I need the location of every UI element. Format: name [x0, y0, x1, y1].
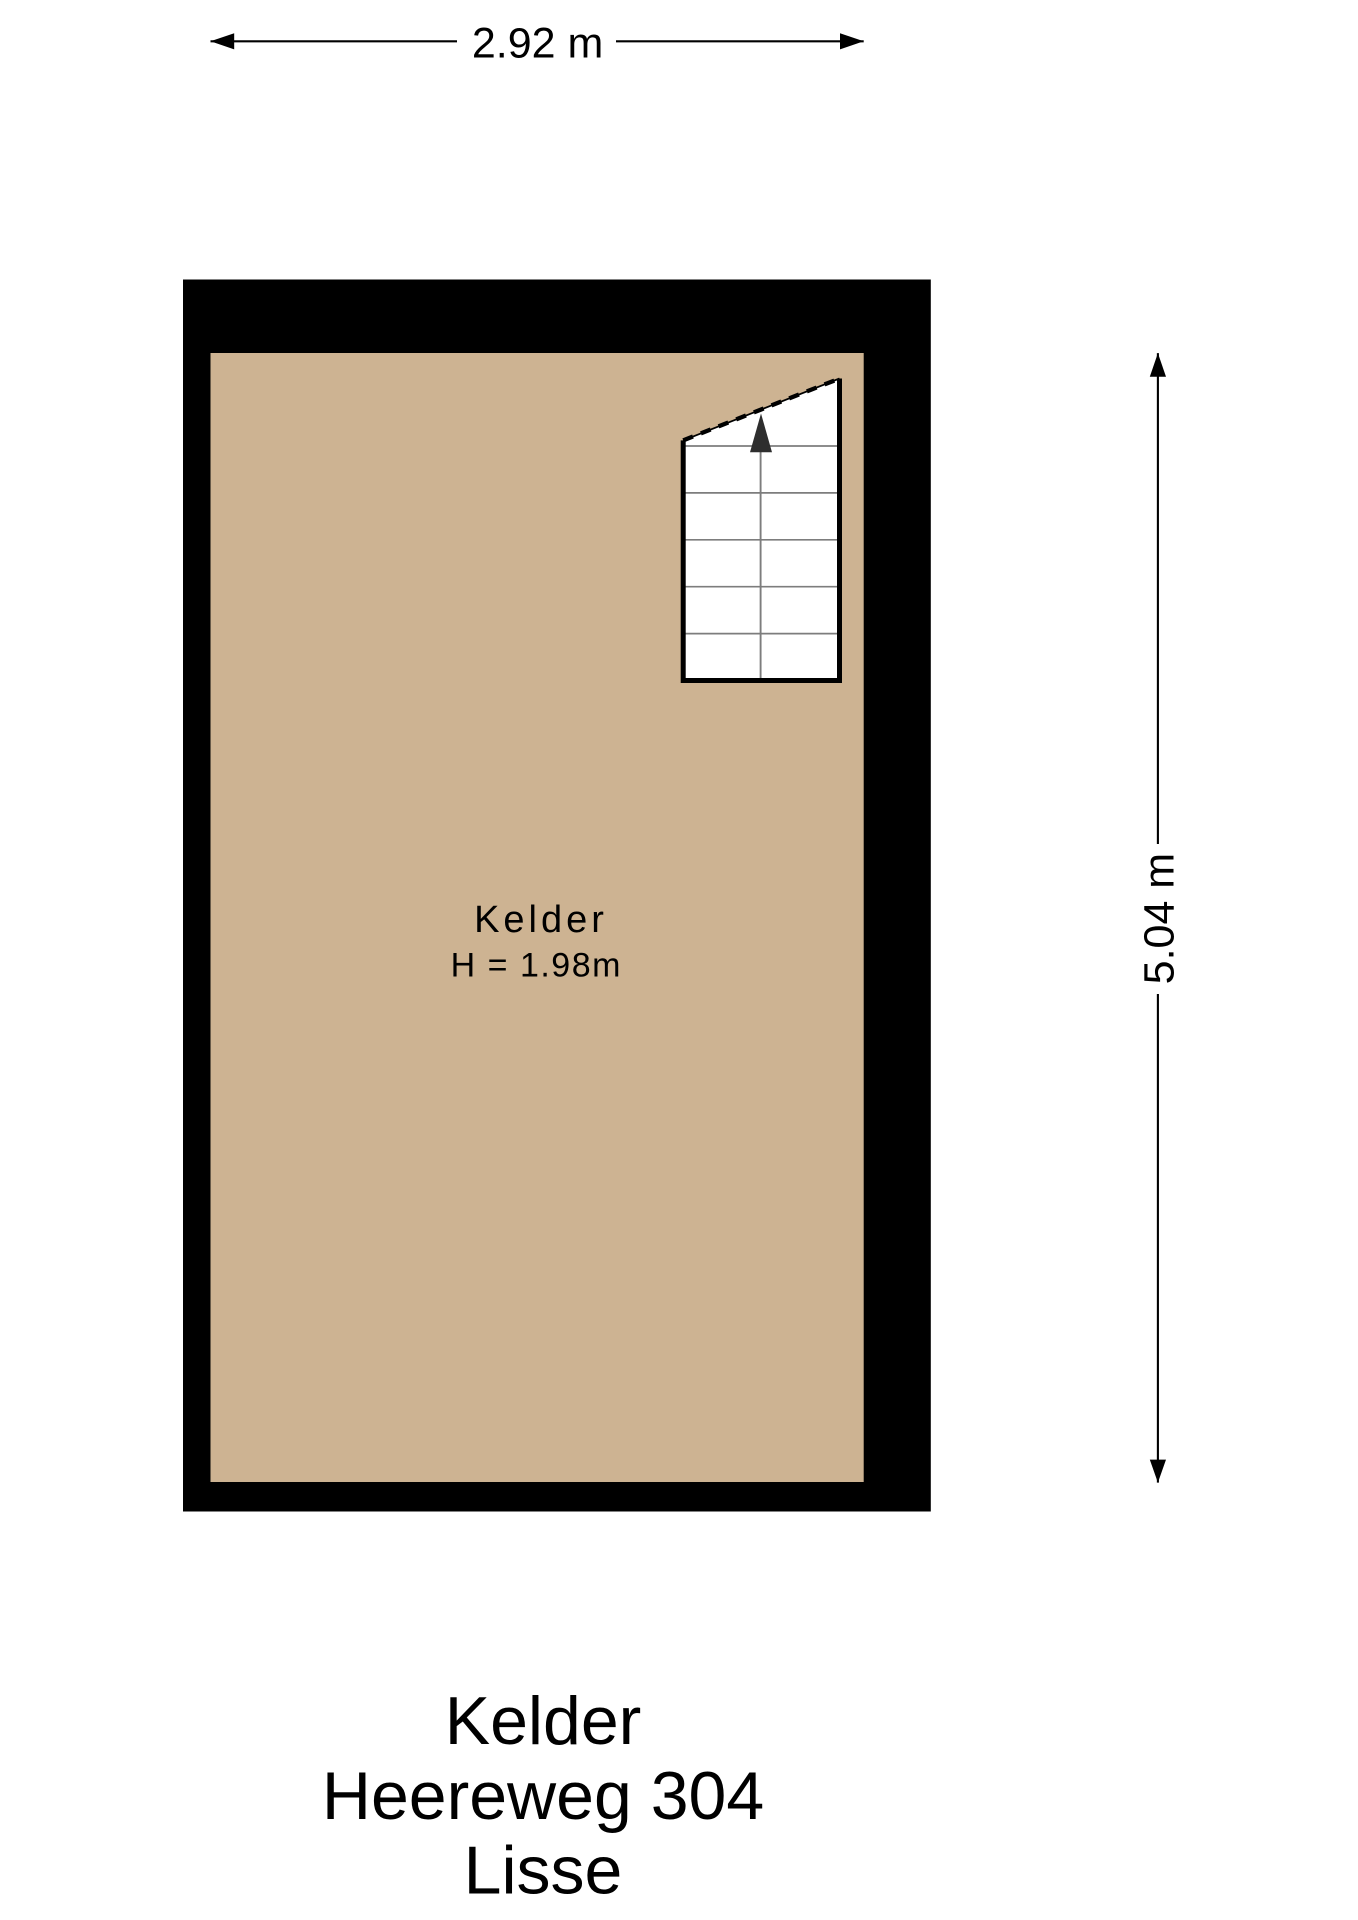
svg-text:2.92 m: 2.92 m	[472, 19, 603, 67]
svg-text:H = 1.98m: H = 1.98m	[451, 947, 622, 985]
svg-text:Lisse: Lisse	[464, 1832, 623, 1908]
svg-text:Kelder: Kelder	[474, 899, 608, 941]
svg-text:Kelder: Kelder	[445, 1683, 642, 1759]
svg-text:Heereweg 304: Heereweg 304	[322, 1758, 764, 1834]
svg-text:5.04 m: 5.04 m	[1135, 853, 1183, 984]
